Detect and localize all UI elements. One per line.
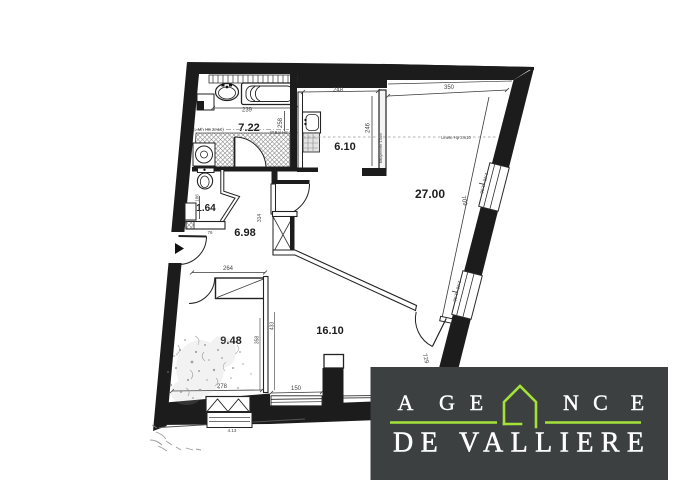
svg-text:350: 350: [444, 85, 455, 91]
svg-text:A: A: [398, 390, 414, 415]
svg-text:258: 258: [278, 117, 284, 128]
svg-text:246: 246: [366, 122, 372, 133]
svg-text:G: G: [439, 390, 455, 415]
svg-text:N: N: [563, 390, 579, 415]
svg-text:C: C: [593, 390, 608, 415]
svg-text:314: 314: [257, 214, 263, 223]
svg-text:433: 433: [270, 322, 276, 331]
svg-text:4.13: 4.13: [228, 428, 237, 433]
svg-text:248: 248: [333, 88, 344, 94]
svg-text:16.10: 16.10: [316, 325, 344, 337]
svg-text:106: 106: [195, 194, 200, 202]
svg-text:DE VALLIERE: DE VALLIERE: [393, 428, 644, 459]
svg-text:264: 264: [223, 266, 234, 272]
svg-text:Linete Hp 2m10: Linete Hp 2m10: [441, 135, 471, 140]
svg-text:6.98: 6.98: [234, 227, 255, 239]
svg-text:(L.Mh HS 2m10): (L.Mh HS 2m10): [193, 127, 224, 132]
svg-text:7.22: 7.22: [238, 122, 259, 134]
svg-text:E: E: [631, 390, 644, 415]
svg-text:76: 76: [207, 230, 213, 235]
svg-text:239: 239: [242, 108, 253, 114]
svg-text:150: 150: [291, 386, 302, 392]
svg-text:E: E: [470, 390, 483, 415]
svg-text:27.00: 27.00: [415, 187, 445, 201]
svg-text:6.10: 6.10: [334, 141, 355, 153]
svg-text:358: 358: [255, 336, 261, 345]
